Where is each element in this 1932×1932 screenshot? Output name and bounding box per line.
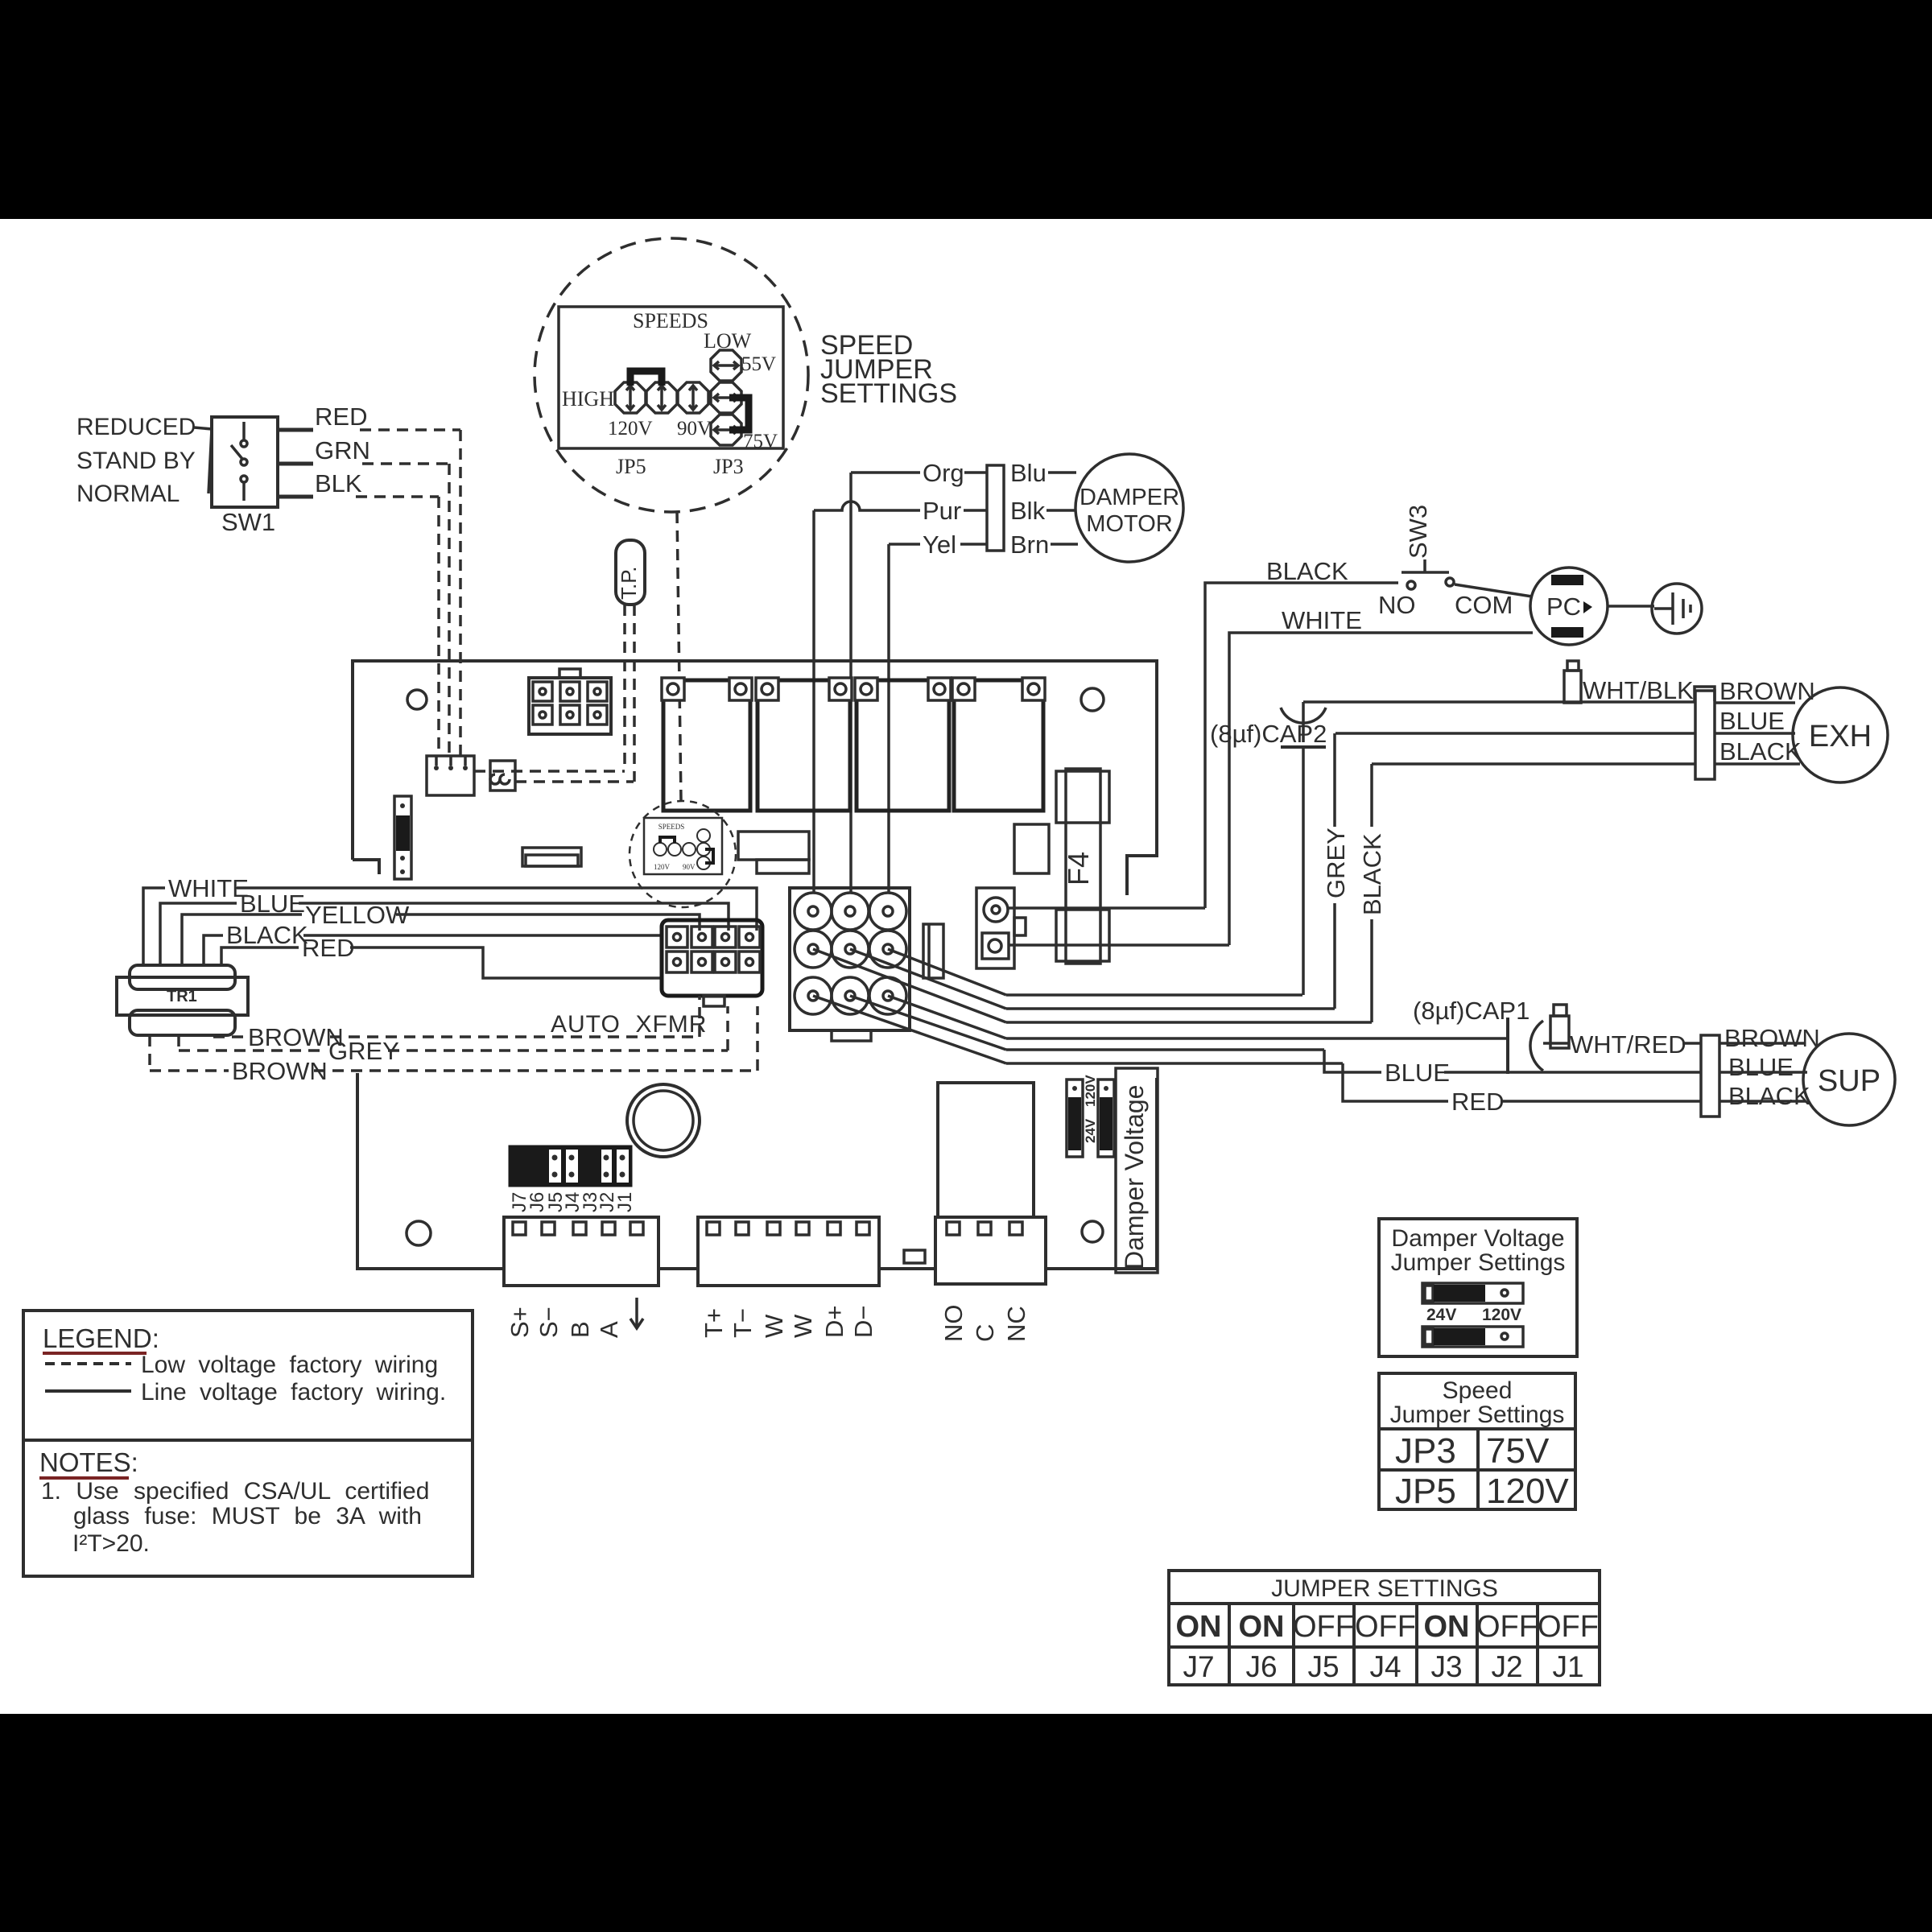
svg-text:ON: ON: [1176, 1610, 1222, 1644]
svg-text:S−: S−: [535, 1307, 563, 1338]
svg-text:BROWN: BROWN: [1724, 1024, 1820, 1052]
svg-text:JP5: JP5: [616, 455, 646, 478]
svg-text:BLUE: BLUE: [1719, 707, 1785, 735]
svg-text:BLACK: BLACK: [1728, 1082, 1810, 1110]
svg-text:BROWN: BROWN: [232, 1057, 328, 1085]
svg-text:RED: RED: [302, 934, 354, 962]
svg-text:Org: Org: [923, 459, 964, 487]
svg-text:Jumper Settings: Jumper Settings: [1390, 1402, 1565, 1428]
svg-text:SETTINGS: SETTINGS: [820, 378, 957, 409]
svg-text:WHT/RED: WHT/RED: [1570, 1030, 1686, 1059]
svg-text:OFF: OFF: [1538, 1610, 1599, 1644]
svg-text:T.P.: T.P.: [617, 567, 641, 600]
svg-text:75V: 75V: [1486, 1431, 1550, 1471]
svg-text:JP5: JP5: [1395, 1472, 1456, 1511]
svg-text:AUTO XFMR: AUTO XFMR: [551, 1011, 707, 1038]
svg-text:OFF: OFF: [1476, 1610, 1538, 1644]
svg-text:120V: 120V: [1482, 1306, 1521, 1324]
svg-text:J4: J4: [1369, 1650, 1401, 1683]
svg-text:90V: 90V: [677, 418, 712, 440]
svg-text:120V: 120V: [1083, 1075, 1098, 1107]
svg-text:Brn: Brn: [1010, 530, 1049, 559]
svg-text:SPEEDS: SPEEDS: [658, 823, 685, 831]
svg-text:120V: 120V: [1486, 1472, 1569, 1511]
svg-text:WHITE: WHITE: [1282, 606, 1362, 634]
svg-text:W: W: [789, 1314, 817, 1338]
svg-text:glass fuse: MUST be 3A with: glass fuse: MUST be 3A with: [73, 1503, 422, 1529]
svg-text:NO: NO: [939, 1305, 968, 1343]
svg-text:WHT/BLK: WHT/BLK: [1583, 676, 1694, 704]
svg-text:J5: J5: [1307, 1650, 1339, 1683]
svg-text:J2: J2: [1491, 1650, 1522, 1683]
svg-text:GREY: GREY: [1322, 828, 1350, 898]
svg-text:OFF: OFF: [1293, 1610, 1354, 1644]
svg-text:J3: J3: [1430, 1650, 1462, 1683]
svg-text:GRN: GRN: [315, 436, 370, 464]
svg-text:A: A: [595, 1321, 623, 1338]
svg-text:(8µf)CAP2: (8µf)CAP2: [1210, 720, 1327, 748]
svg-text:120V: 120V: [608, 418, 653, 440]
svg-text:I²T>20.: I²T>20.: [72, 1530, 150, 1557]
svg-text:D−: D−: [849, 1306, 877, 1339]
svg-text:BLUE: BLUE: [1728, 1053, 1794, 1081]
svg-text:Speed: Speed: [1443, 1377, 1513, 1404]
svg-text:F4: F4: [1062, 852, 1095, 885]
svg-text:C: C: [971, 1324, 999, 1342]
svg-text:B: B: [566, 1321, 594, 1338]
svg-text:NO: NO: [1378, 591, 1416, 619]
svg-text:Yel: Yel: [923, 530, 956, 559]
svg-text:SPEEDS: SPEEDS: [633, 309, 708, 332]
svg-text:24V: 24V: [1083, 1118, 1098, 1143]
svg-text:BLUE: BLUE: [1385, 1059, 1450, 1087]
svg-text:(8µf)CAP1: (8µf)CAP1: [1413, 997, 1529, 1025]
svg-text:T−: T−: [729, 1308, 757, 1338]
svg-text:BLACK: BLACK: [1266, 557, 1348, 585]
svg-text:YELLOW: YELLOW: [305, 901, 410, 929]
svg-text:Jumper Settings: Jumper Settings: [1391, 1249, 1566, 1276]
svg-text:Pur: Pur: [923, 497, 961, 525]
svg-text:Blu: Blu: [1010, 459, 1046, 487]
svg-text:90V: 90V: [683, 863, 696, 871]
svg-text:NORMAL: NORMAL: [76, 481, 180, 507]
svg-text:NOTES:: NOTES:: [39, 1447, 138, 1477]
svg-text:OFF: OFF: [1355, 1610, 1416, 1644]
svg-text:J6: J6: [1245, 1650, 1277, 1683]
svg-text:WHITE: WHITE: [168, 874, 249, 902]
svg-text:NC: NC: [1002, 1306, 1030, 1342]
svg-text:Blk: Blk: [1010, 497, 1046, 525]
svg-text:STAND BY: STAND BY: [76, 448, 196, 474]
svg-text:W: W: [760, 1314, 788, 1338]
svg-text:J1: J1: [1552, 1650, 1583, 1683]
svg-text:1. Use specified CSA/UL certif: 1. Use specified CSA/UL certified: [41, 1478, 429, 1505]
svg-text:ON: ON: [1239, 1610, 1285, 1644]
svg-text:T+: T+: [700, 1308, 728, 1338]
svg-text:Damper Voltage: Damper Voltage: [1391, 1225, 1564, 1252]
svg-text:LEGEND:: LEGEND:: [43, 1323, 159, 1353]
svg-text:24V: 24V: [1426, 1306, 1456, 1324]
svg-text:J1: J1: [614, 1192, 636, 1212]
svg-text:Low voltage factory wiring: Low voltage factory wiring: [141, 1352, 438, 1378]
svg-text:55V: 55V: [741, 353, 776, 375]
svg-text:JP3: JP3: [1395, 1431, 1456, 1471]
svg-text:J7: J7: [1183, 1650, 1214, 1683]
svg-text:BLACK: BLACK: [226, 921, 308, 949]
svg-text:D+: D+: [820, 1306, 848, 1339]
svg-text:SW1: SW1: [221, 508, 275, 536]
svg-text:BLK: BLK: [315, 469, 362, 497]
svg-text:BROWN: BROWN: [1719, 677, 1815, 705]
svg-text:DAMPER: DAMPER: [1080, 485, 1179, 510]
svg-text:Damper Voltage: Damper Voltage: [1120, 1085, 1149, 1269]
svg-text:JUMPER SETTINGS: JUMPER SETTINGS: [1271, 1575, 1498, 1602]
svg-text:BLACK: BLACK: [1719, 737, 1802, 766]
svg-text:JP3: JP3: [713, 455, 744, 478]
svg-text:EXH: EXH: [1809, 720, 1872, 753]
svg-text:RED: RED: [1451, 1088, 1504, 1116]
svg-text:Line voltage factory wiring.: Line voltage factory wiring.: [141, 1379, 446, 1406]
svg-text:S+: S+: [506, 1307, 534, 1338]
svg-text:TR1: TR1: [167, 988, 197, 1005]
svg-text:120V: 120V: [654, 863, 671, 871]
svg-text:ON: ON: [1424, 1610, 1470, 1644]
svg-text:SUP: SUP: [1818, 1064, 1880, 1098]
svg-text:RED: RED: [315, 402, 367, 431]
svg-text:HIGH: HIGH: [562, 387, 614, 411]
svg-text:SW3: SW3: [1404, 505, 1432, 559]
svg-text:COM: COM: [1455, 591, 1513, 619]
svg-text:75V: 75V: [743, 431, 778, 452]
svg-text:PC: PC: [1546, 592, 1581, 621]
svg-text:BLACK: BLACK: [1358, 833, 1386, 915]
svg-text:REDUCED: REDUCED: [76, 414, 196, 440]
svg-text:MOTOR: MOTOR: [1086, 511, 1172, 537]
